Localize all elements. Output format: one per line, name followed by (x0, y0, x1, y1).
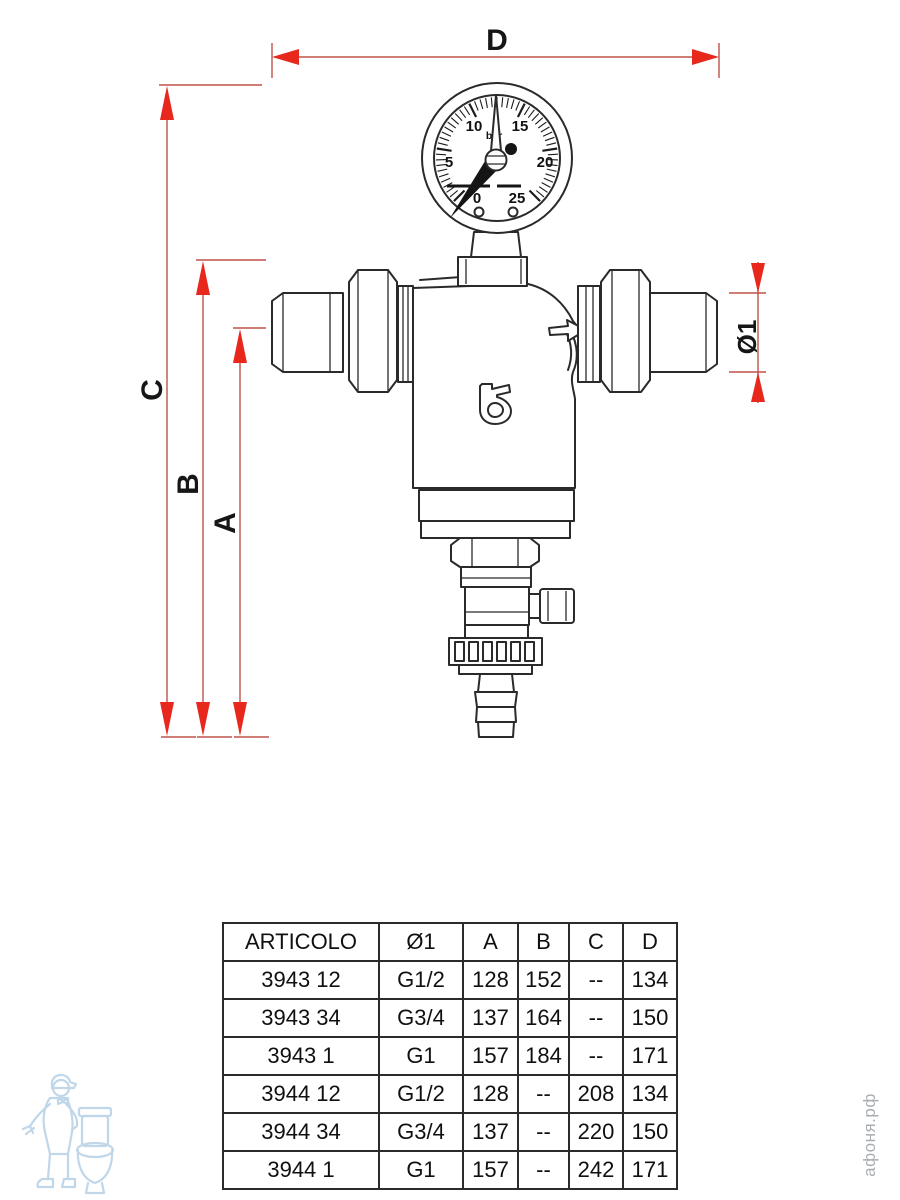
plumber-watermark-logo (20, 1062, 130, 1197)
valve-assembly (272, 232, 717, 737)
col-header-a: A (463, 923, 518, 961)
cell-b: -- (518, 1113, 569, 1151)
cell-articolo: 3943 34 (223, 999, 379, 1037)
arrow-down-icon (233, 702, 247, 736)
drain-valve-collar (461, 567, 531, 587)
arrow-up-icon (233, 329, 247, 363)
cell-d: 134 (623, 961, 677, 999)
cell-d: 134 (623, 1075, 677, 1113)
cell-b: -- (518, 1151, 569, 1189)
cell-c: 208 (569, 1075, 623, 1113)
drain-assembly (449, 538, 574, 737)
col-header-articolo: ARTICOLO (223, 923, 379, 961)
gauge-scale-label: 5 (445, 154, 453, 171)
drain-valve-body (465, 587, 529, 625)
cell-c: 220 (569, 1113, 623, 1151)
table-row: 3944 12 G1/2 128 -- 208 134 (223, 1075, 677, 1113)
manufacturer-logo-icon (480, 384, 511, 424)
gauge-screw-icon (475, 208, 484, 217)
arrow-down-icon (751, 263, 765, 293)
filter-ring (419, 490, 574, 521)
cell-c: 242 (569, 1151, 623, 1189)
gauge-scale-label: 15 (512, 118, 529, 135)
dimension-c: C (136, 85, 262, 737)
cell-diameter: G3/4 (379, 1113, 463, 1151)
hose-barb (475, 674, 517, 737)
cell-d: 171 (623, 1151, 677, 1189)
table-row: 3944 34 G3/4 137 -- 220 150 (223, 1113, 677, 1151)
col-header-b: B (518, 923, 569, 961)
dimension-label-c: C (136, 379, 169, 401)
gauge-fitting (458, 257, 527, 286)
valve-technical-drawing: 0 5 10 15 20 25 bar D (0, 0, 900, 900)
dimension-label-diameter: Ø1 (732, 320, 762, 355)
cell-diameter: G1 (379, 1037, 463, 1075)
cell-a: 128 (463, 961, 518, 999)
cell-b: -- (518, 1075, 569, 1113)
cell-diameter: G3/4 (379, 999, 463, 1037)
gauge-scale-label: 20 (537, 154, 554, 171)
left-collar (398, 286, 413, 382)
dimension-diameter: Ø1 (729, 262, 766, 403)
cell-c: -- (569, 961, 623, 999)
drain-knob (529, 589, 574, 623)
dimension-a: A (209, 328, 269, 737)
cell-a: 137 (463, 999, 518, 1037)
cell-articolo: 3944 12 (223, 1075, 379, 1113)
cell-d: 150 (623, 1113, 677, 1151)
arrow-down-icon (196, 702, 210, 736)
gauge-screw-icon (509, 208, 518, 217)
site-watermark-text: афоня.рф (860, 1050, 882, 1200)
pressure-gauge: 0 5 10 15 20 25 bar (422, 83, 572, 233)
gauge-needle-counterweight (505, 143, 517, 155)
cell-a: 128 (463, 1075, 518, 1113)
col-header-d: D (623, 923, 677, 961)
gauge-scale-label: 10 (466, 118, 483, 135)
cell-a: 137 (463, 1113, 518, 1151)
cell-b: 164 (518, 999, 569, 1037)
arrow-left-icon (272, 49, 299, 65)
bowl-flange (421, 521, 570, 538)
dimension-label-d: D (486, 24, 508, 57)
dimension-label-b: B (172, 473, 205, 495)
cell-d: 150 (623, 999, 677, 1037)
cell-a: 157 (463, 1037, 518, 1075)
arrow-up-icon (160, 86, 174, 120)
cell-diameter: G1/2 (379, 1075, 463, 1113)
gauge-hub (486, 150, 507, 171)
cell-d: 171 (623, 1037, 677, 1075)
table-header-row: ARTICOLO Ø1 A B C D (223, 923, 677, 961)
plumber-figure (23, 1075, 77, 1187)
valve-body (413, 277, 577, 538)
right-union-nut (601, 270, 650, 392)
table-row: 3943 12 G1/2 128 152 -- 134 (223, 961, 677, 999)
cell-articolo: 3943 1 (223, 1037, 379, 1075)
cell-articolo: 3943 12 (223, 961, 379, 999)
toilet (77, 1108, 113, 1193)
table-row: 3943 34 G3/4 137 164 -- 150 (223, 999, 677, 1037)
arrow-down-icon (160, 702, 174, 736)
drain-neck (465, 625, 528, 638)
arrow-up-icon (751, 372, 765, 402)
right-collar (578, 286, 600, 382)
cell-articolo: 3944 1 (223, 1151, 379, 1189)
dimension-b: B (172, 260, 266, 737)
table-row: 3943 1 G1 157 184 -- 171 (223, 1037, 677, 1075)
arrow-right-icon (692, 49, 719, 65)
cell-diameter: G1/2 (379, 961, 463, 999)
drain-hex-nut (451, 538, 539, 567)
cell-c: -- (569, 1037, 623, 1075)
cell-b: 152 (518, 961, 569, 999)
cell-diameter: G1 (379, 1151, 463, 1189)
cell-c: -- (569, 999, 623, 1037)
gauge-stem (471, 232, 521, 257)
left-union-nut (349, 270, 397, 392)
col-header-diameter: Ø1 (379, 923, 463, 961)
right-threaded-end (650, 293, 717, 372)
table-row: 3944 1 G1 157 -- 242 171 (223, 1151, 677, 1189)
cell-a: 157 (463, 1151, 518, 1189)
dimension-label-a: A (209, 512, 242, 534)
cell-articolo: 3944 34 (223, 1113, 379, 1151)
gauge-scale-label: 25 (509, 190, 526, 207)
col-header-c: C (569, 923, 623, 961)
barb-base (459, 665, 532, 674)
page: 0 5 10 15 20 25 bar D (0, 0, 900, 1200)
knurled-ring (449, 638, 542, 665)
left-threaded-end (272, 293, 343, 372)
arrow-up-icon (196, 261, 210, 295)
cell-b: 184 (518, 1037, 569, 1075)
spec-table: ARTICOLO Ø1 A B C D 3943 12 G1/2 128 152… (222, 922, 678, 1190)
dimension-d: D (272, 24, 719, 78)
